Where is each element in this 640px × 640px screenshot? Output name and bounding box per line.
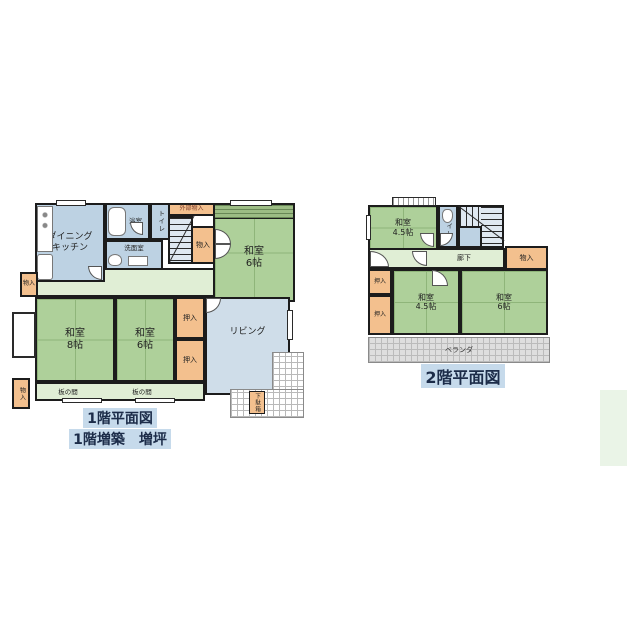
itanoma-label-w-wrap: 板の間 [48,385,88,397]
window-1f-kitchen [56,200,86,206]
room-label-storage-nw: 物入 [23,281,35,288]
itanoma-label-w: 板の間 [58,386,78,396]
itanoma-label-e: 板の間 [132,386,152,396]
laundry-icon [128,256,148,266]
caption-floor1-line2: 1階増築 増坪 [69,429,171,449]
porch-right [272,352,304,394]
window-2f-north [392,197,436,206]
bathtub-icon [108,207,126,236]
toilet-bowl-icon [442,209,453,223]
kitchen-sink-icon [37,254,53,280]
room-label-washitsu8: 和室 8帖 [65,328,85,351]
room-label-washitsu45-n: 和室 4.5帖 [393,218,414,236]
room-label-oshiire-s-2f: 押入 [374,312,386,319]
window-1f-south-w [62,398,102,403]
caption-floor1-line1: 1階平面図 [83,408,157,428]
room-label-ext-storage: 外部物入 [179,206,203,213]
room-storage-stairs: 物入 [191,226,215,264]
bay-window-1f [12,312,36,358]
room-oshiire-n-1f: 押入 [175,297,205,339]
room-storage-nw: 物入 [20,272,38,297]
room-label-veranda: ベランダ [445,345,473,355]
caption-floor2: 2階平面図 [408,364,518,388]
room-label-washitsu6-ne: 和室 6帖 [244,246,264,269]
floor-plan-canvas: ダイニング キッチン 浴室 トイレ 洗面室 外部物入 物入 和室 6帖 物入 和… [0,0,640,640]
room-oshiire-s-1f: 押入 [175,339,205,382]
room-label-living: リビング [229,327,265,337]
caption-floor2-text: 2階平面図 [421,364,504,388]
room-washitsu6-2f: 和室 6帖 [460,269,548,335]
room-oshiire-s-2f: 押入 [368,295,392,335]
window-1f-ne [230,200,272,206]
stairs-2f-landing [458,226,482,248]
room-label-oshiire-n-2f: 押入 [374,279,386,286]
room-oshiire-n-2f: 押入 [368,269,392,295]
room-washitsu8: 和室 8帖 [35,297,115,382]
room-label-storage-sw: 物入 [18,387,25,401]
room-label-storage-2f: 物入 [520,254,534,262]
side-green-rect [600,390,627,466]
window-1f-south-e [135,398,175,403]
room-label-dining-kitchen: ダイニング キッチン [47,232,92,253]
room-label-getabako: 下駄箱 [254,393,260,413]
room-label-oshiire-s-1f: 押入 [183,356,197,364]
room-label-washitsu6-sw: 和室 6帖 [135,328,155,351]
room-label-storage-stairs: 物入 [196,241,210,249]
room-toilet-1f: トイレ [150,203,170,240]
room-washitsu6-sw: 和室 6帖 [115,297,175,382]
stove-icon [37,206,53,252]
itanoma-label-e-wrap: 板の間 [122,385,162,397]
room-washitsu45-c: 和室 4.5帖 [392,269,460,335]
room-getabako: 下駄箱 [249,391,265,414]
room-label-hall-2f: 廊下 [457,254,471,262]
room-label-washroom: 洗面室 [124,245,144,252]
porch-bottom [230,389,304,418]
room-storage-2f: 物入 [505,246,548,270]
engawa-strip [215,205,293,219]
room-label-washitsu6-2f: 和室 6帖 [496,293,512,311]
room-storage-sw: 物入 [12,378,30,409]
room-label-washitsu45-c: 和室 4.5帖 [416,293,437,311]
window-1f-living [287,310,293,340]
room-label-oshiire-n-1f: 押入 [183,314,197,322]
washbasin-icon [108,254,122,266]
window-2f-west [366,215,371,240]
room-label-toilet-1f: トイレ [156,210,163,233]
caption-floor1: 1階平面図 1階増築 増坪 [58,408,182,449]
veranda: ベランダ [368,337,550,363]
room-ext-storage: 外部物入 [168,203,215,216]
